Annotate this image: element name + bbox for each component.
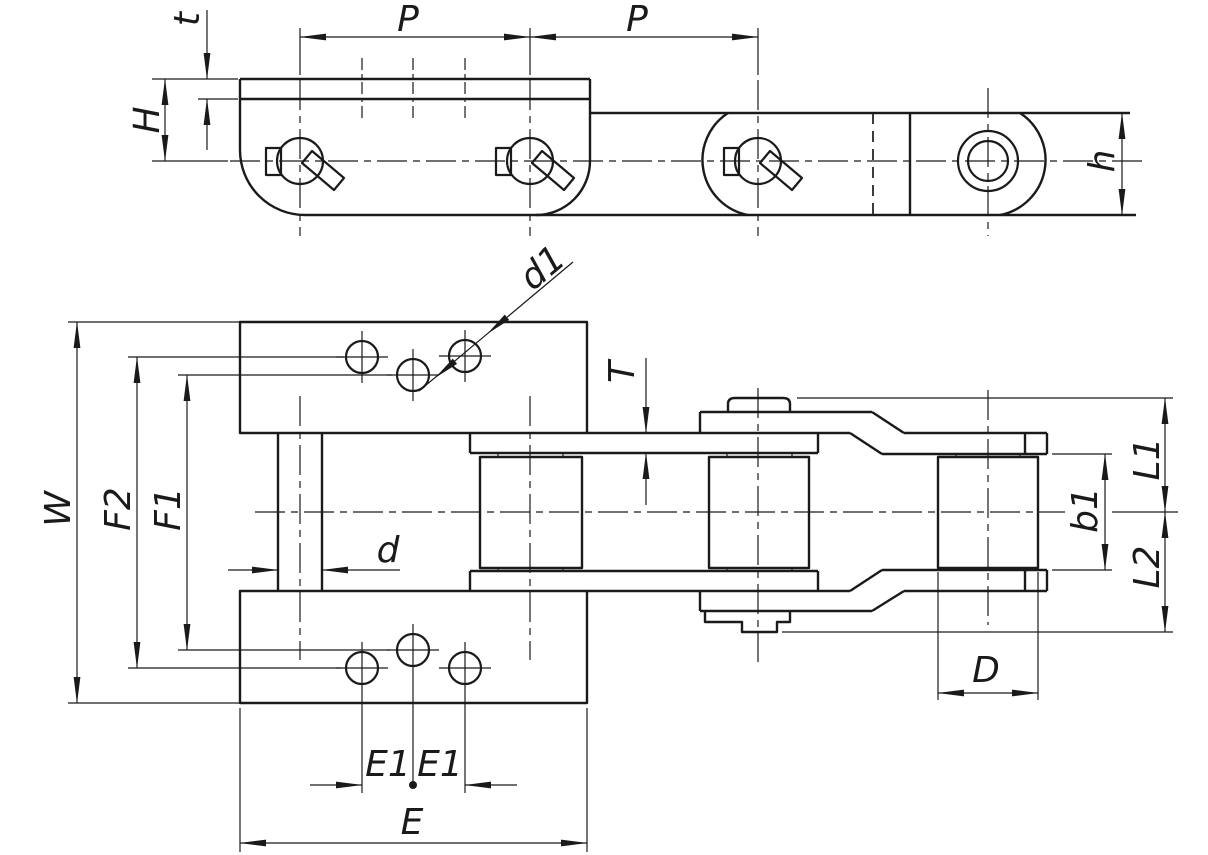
plan-view: d1 T W F2 F1 d b1 L1 L2 D E1 E1 E [38, 238, 1178, 852]
dim-label-attachment-height-H: H [127, 106, 168, 133]
drawing-sheet: P P t H h [0, 0, 1208, 855]
dim-label-hole-offset-E1-left: E1 [365, 744, 411, 785]
dim-label-inner-width-b1: b1 [1065, 487, 1106, 533]
dim-label-pin-diameter-d: d [377, 530, 401, 571]
plan-view-attachment-holes [336, 330, 491, 793]
dim-label-hole-span-F2: F2 [98, 487, 139, 531]
plan-view-centerlines [255, 388, 1065, 662]
d1-leader-arrow-2 [433, 359, 457, 381]
dim-label-attachment-hole-d1: d1 [512, 238, 573, 299]
dim-label-length-L2: L2 [1127, 546, 1168, 589]
dim-label-plate-thickness-t: t [167, 10, 208, 26]
dim-label-pitch-right: P [626, 0, 648, 40]
side-view-pin-1 [266, 138, 344, 190]
side-view-hole-axis-ticks [362, 58, 465, 118]
dim-label-link-height-h: h [1082, 150, 1123, 173]
plan-view-dimension-lines [68, 262, 1178, 852]
dim-label-overall-width-W: W [38, 490, 79, 527]
dim-label-plate-thickness-T: T [602, 358, 643, 383]
dim-label-plate-length-E: E [401, 802, 424, 843]
side-view-pin-2 [496, 138, 574, 190]
dim-label-length-L1: L1 [1127, 438, 1168, 481]
dim-label-pitch-left: P [397, 0, 419, 40]
dim-label-roller-diameter-D: D [972, 650, 1000, 691]
side-view: P P t H h [127, 0, 1145, 236]
side-view-pin-3 [724, 138, 802, 190]
technical-drawing-canvas: P P t H h [0, 0, 1208, 855]
dim-label-hole-span-F1: F1 [148, 487, 189, 531]
dim-label-hole-offset-E1-right: E1 [417, 744, 463, 785]
